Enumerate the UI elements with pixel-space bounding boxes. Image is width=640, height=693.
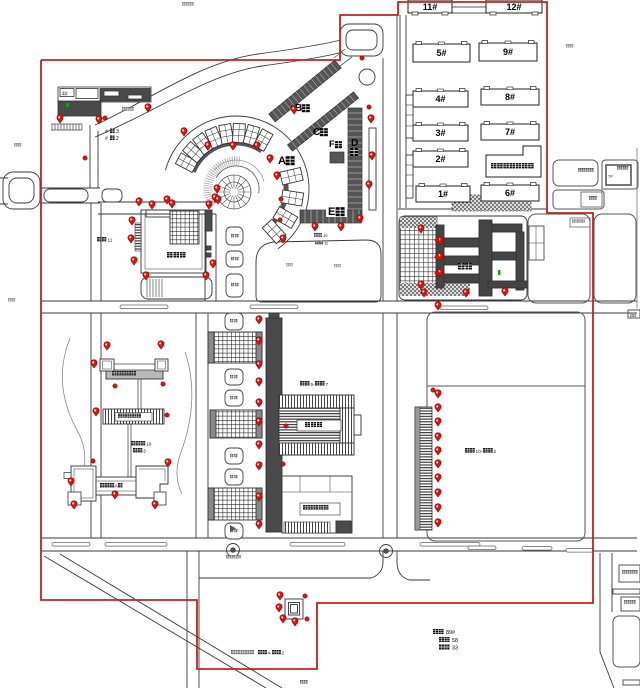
svg-text:#: #	[105, 136, 108, 142]
svg-text:F: F	[329, 139, 335, 149]
svg-text:2#: 2#	[435, 154, 445, 164]
svg-text:E: E	[328, 206, 335, 218]
svg-text:D: D	[351, 138, 358, 149]
svg-text:10: 10	[146, 442, 152, 447]
svg-text:7: 7	[326, 382, 329, 388]
svg-text:11: 11	[108, 238, 113, 243]
svg-text:58: 58	[452, 638, 458, 644]
svg-text:A: A	[278, 155, 286, 167]
svg-text:11#: 11#	[423, 2, 438, 12]
svg-text:5-: 5-	[311, 382, 316, 388]
svg-text:10-: 10-	[476, 449, 483, 455]
svg-text:1#: 1#	[438, 189, 448, 199]
svg-text:7#: 7#	[505, 127, 515, 137]
svg-text:2: 2	[116, 136, 119, 142]
svg-text:4#: 4#	[435, 94, 445, 104]
svg-text:6#: 6#	[505, 188, 515, 198]
svg-text:3#: 3#	[435, 128, 445, 138]
svg-text:C: C	[313, 127, 320, 138]
svg-text:3: 3	[116, 129, 119, 135]
svg-text:#: #	[105, 129, 108, 135]
svg-text:3: 3	[143, 449, 146, 454]
svg-text:12#: 12#	[506, 2, 521, 12]
svg-text:33: 33	[452, 646, 458, 652]
svg-text:10: 10	[323, 233, 328, 238]
svg-text:9#: 9#	[503, 47, 513, 57]
svg-text:5#: 5#	[436, 48, 446, 58]
svg-text:4-: 4-	[268, 650, 272, 655]
svg-text:2: 2	[494, 449, 497, 455]
svg-text:8#: 8#	[505, 92, 515, 102]
svg-text:89#: 89#	[446, 630, 455, 636]
svg-text:4#: 4#	[62, 92, 68, 98]
svg-text:7#: 7#	[608, 174, 613, 179]
